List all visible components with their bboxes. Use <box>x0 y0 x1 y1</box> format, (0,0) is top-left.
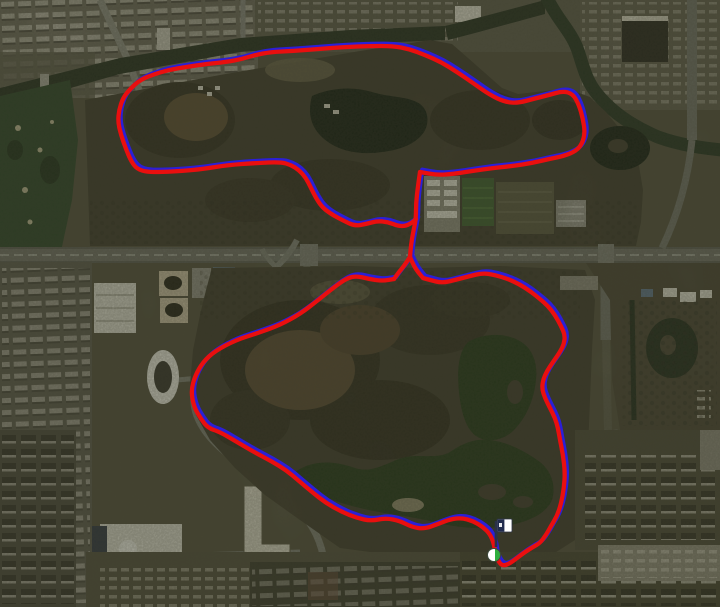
map-viewport[interactable] <box>0 0 720 607</box>
satellite-map[interactable] <box>0 0 720 607</box>
flag-checker-square <box>499 523 502 527</box>
start-marker[interactable] <box>488 549 501 562</box>
